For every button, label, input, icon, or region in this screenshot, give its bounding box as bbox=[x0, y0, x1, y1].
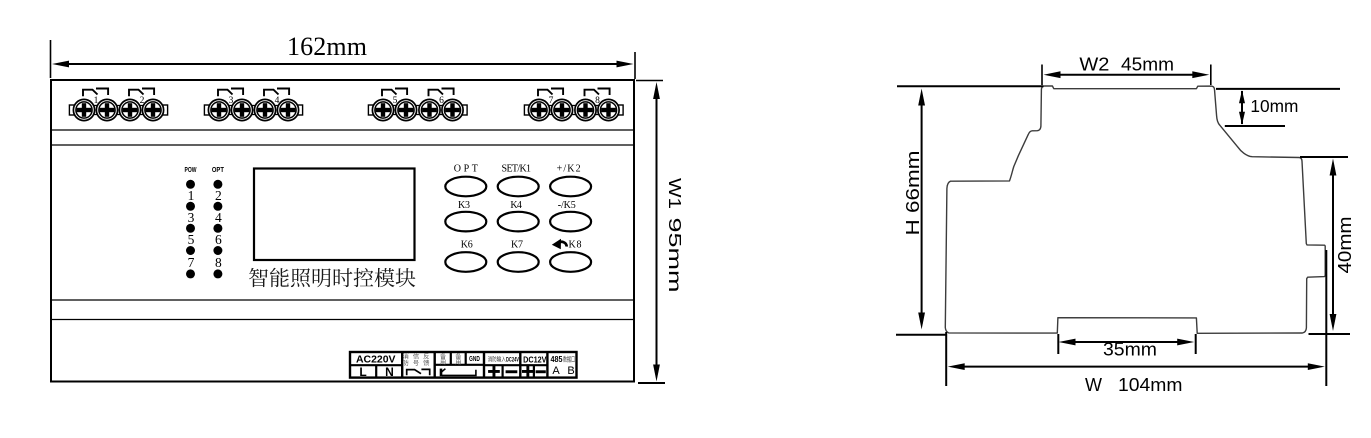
svg-text:6: 6 bbox=[215, 232, 222, 247]
svg-text:DC12V: DC12V bbox=[523, 354, 547, 364]
svg-text:GND: GND bbox=[469, 354, 480, 363]
svg-text:5: 5 bbox=[393, 96, 398, 106]
svg-text:104mm: 104mm bbox=[1118, 375, 1183, 395]
svg-text:1: 1 bbox=[188, 188, 195, 203]
svg-text:4: 4 bbox=[275, 96, 280, 106]
svg-text:POW: POW bbox=[185, 167, 197, 174]
svg-text:8: 8 bbox=[595, 96, 600, 106]
svg-text:K3: K3 bbox=[458, 200, 470, 211]
svg-text:10mm: 10mm bbox=[1250, 96, 1298, 116]
svg-text:K8: K8 bbox=[569, 240, 582, 251]
svg-text:K4: K4 bbox=[510, 200, 522, 211]
svg-text:K6: K6 bbox=[461, 240, 473, 251]
svg-text:3: 3 bbox=[188, 210, 195, 225]
svg-text:7: 7 bbox=[549, 96, 554, 106]
svg-text:A: A bbox=[552, 365, 560, 377]
svg-text:40mm: 40mm bbox=[1335, 217, 1355, 274]
svg-text:7: 7 bbox=[188, 255, 195, 270]
svg-text:4: 4 bbox=[215, 210, 222, 225]
svg-text:DC24V: DC24V bbox=[506, 356, 519, 363]
svg-text:OPT: OPT bbox=[454, 164, 478, 175]
svg-text:L: L bbox=[359, 365, 366, 379]
svg-text:5: 5 bbox=[188, 232, 195, 247]
svg-text:-/K5: -/K5 bbox=[558, 200, 576, 211]
svg-text:SET/K1: SET/K1 bbox=[502, 164, 532, 175]
svg-text:W2: W2 bbox=[1079, 55, 1109, 75]
svg-text:W1: W1 bbox=[665, 178, 685, 209]
svg-text:8: 8 bbox=[215, 255, 222, 270]
svg-text:45mm: 45mm bbox=[1121, 55, 1174, 75]
svg-text:6: 6 bbox=[439, 96, 444, 106]
svg-text:2: 2 bbox=[140, 96, 145, 106]
svg-text:485: 485 bbox=[551, 355, 563, 364]
svg-text:OPT: OPT bbox=[212, 167, 225, 174]
svg-text:+/K2: +/K2 bbox=[557, 164, 581, 175]
svg-text:K7: K7 bbox=[511, 240, 523, 251]
svg-text:162mm: 162mm bbox=[287, 32, 367, 61]
svg-text:B: B bbox=[567, 365, 574, 377]
svg-text:3: 3 bbox=[229, 96, 234, 106]
svg-text:35mm: 35mm bbox=[1103, 340, 1157, 360]
svg-text:95mm: 95mm bbox=[665, 218, 685, 293]
svg-text:2: 2 bbox=[215, 188, 222, 203]
svg-text:1: 1 bbox=[94, 96, 99, 106]
svg-text:N: N bbox=[385, 365, 394, 379]
svg-text:H 66mm: H 66mm bbox=[903, 151, 923, 236]
svg-text:W: W bbox=[1085, 375, 1102, 395]
